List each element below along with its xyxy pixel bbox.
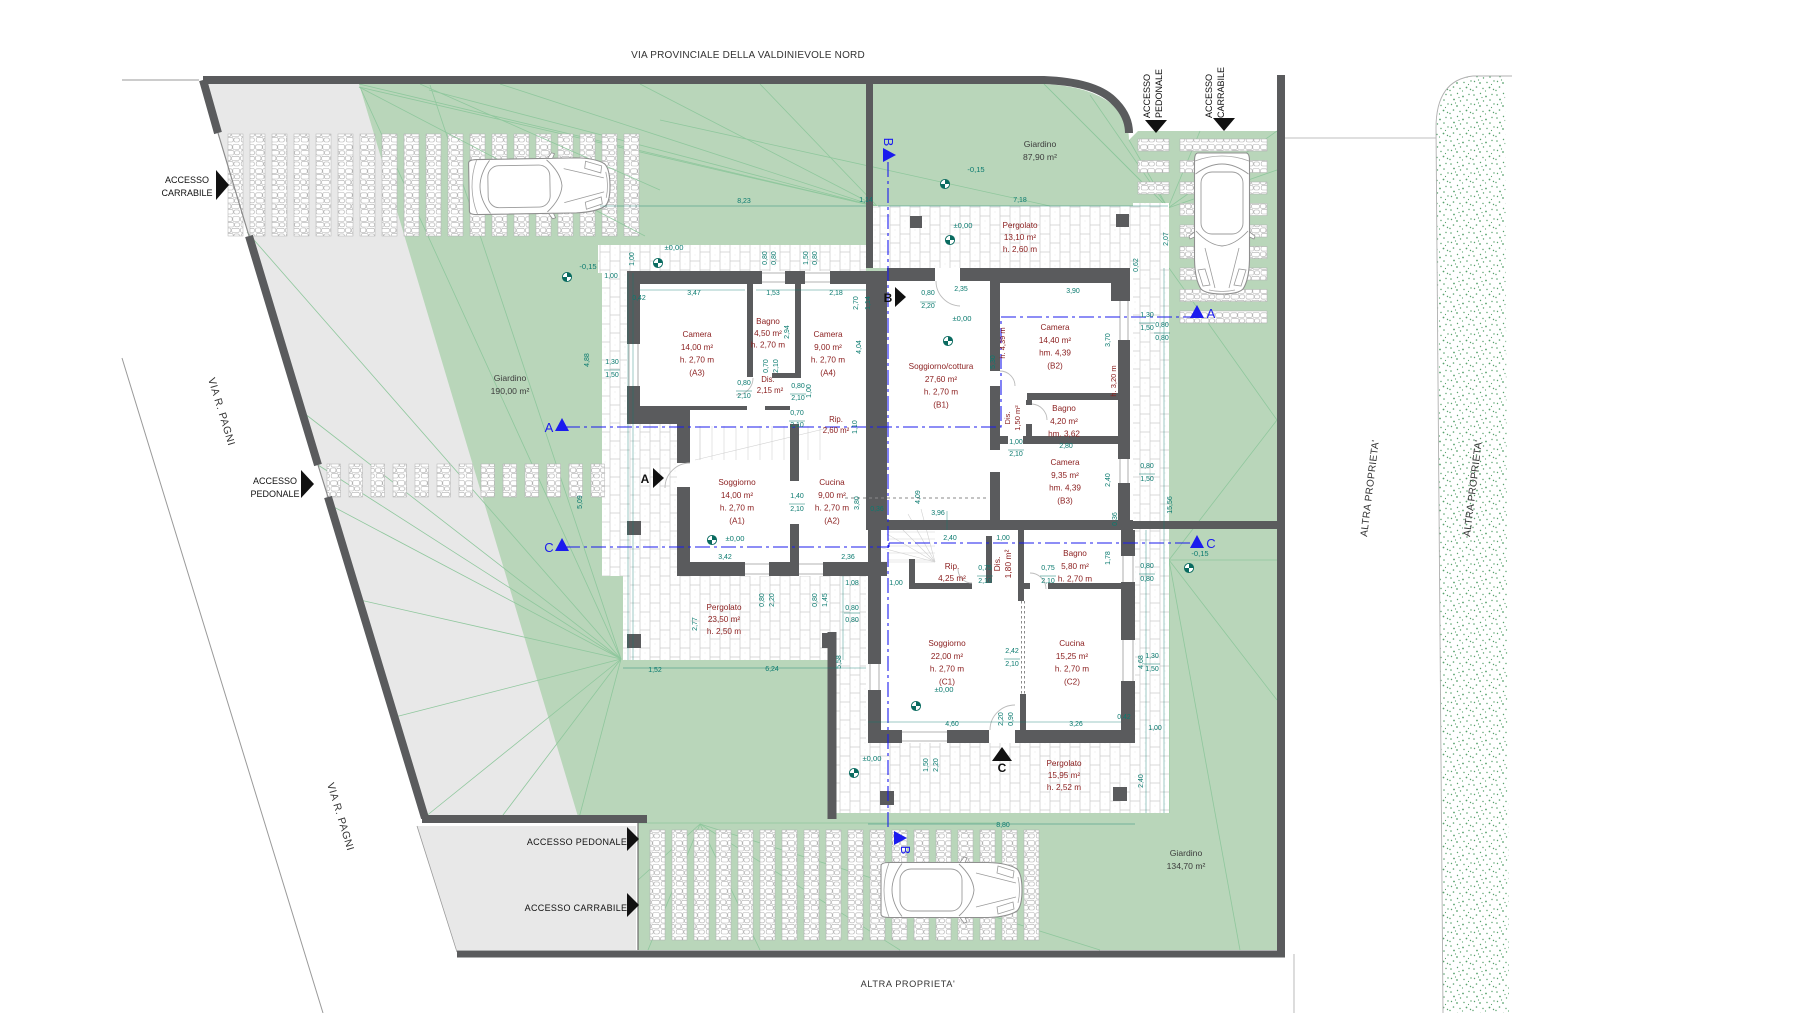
svg-text:Rip.: Rip. xyxy=(945,562,960,571)
svg-text:2,18: 2,18 xyxy=(829,290,843,297)
svg-text:C: C xyxy=(998,761,1007,775)
svg-text:0,80: 0,80 xyxy=(921,290,935,297)
svg-text:Cucina: Cucina xyxy=(1059,639,1085,648)
svg-text:4,25 m²: 4,25 m² xyxy=(938,574,966,583)
svg-text:±0,00: ±0,00 xyxy=(953,314,972,323)
svg-text:ACCESSO: ACCESSO xyxy=(1142,74,1152,118)
svg-text:2,20: 2,20 xyxy=(769,593,776,607)
svg-text:(A1): (A1) xyxy=(729,516,745,525)
svg-text:2,42: 2,42 xyxy=(1005,648,1019,655)
svg-text:5,80 m²: 5,80 m² xyxy=(1061,562,1089,571)
svg-text:±0,00: ±0,00 xyxy=(863,754,882,763)
svg-text:2,20: 2,20 xyxy=(921,303,935,310)
svg-text:1,40: 1,40 xyxy=(790,493,804,500)
svg-text:Giardino: Giardino xyxy=(494,373,527,383)
svg-text:15,95 m²: 15,95 m² xyxy=(1048,771,1081,780)
svg-text:Giardino: Giardino xyxy=(1170,848,1203,858)
svg-text:0,80: 0,80 xyxy=(845,617,859,624)
svg-text:±0,00: ±0,00 xyxy=(665,243,684,252)
svg-text:2,77: 2,77 xyxy=(692,617,699,631)
svg-text:Cucina: Cucina xyxy=(819,478,845,487)
svg-text:14,00 m²: 14,00 m² xyxy=(721,491,754,500)
svg-text:2,10: 2,10 xyxy=(790,422,804,429)
svg-text:h. 2,70 m: h. 2,70 m xyxy=(815,504,849,513)
svg-text:0,42: 0,42 xyxy=(1117,714,1131,721)
svg-text:Camera: Camera xyxy=(682,330,712,339)
svg-text:h. 4,39 m: h. 4,39 m xyxy=(998,327,1007,358)
svg-text:Camera: Camera xyxy=(813,330,843,339)
svg-text:A: A xyxy=(1207,306,1216,321)
svg-text:0,80: 0,80 xyxy=(759,593,766,607)
svg-text:C: C xyxy=(544,540,553,555)
svg-text:1,50: 1,50 xyxy=(923,758,930,772)
svg-text:5,09: 5,09 xyxy=(577,495,584,509)
svg-text:9,00 m²: 9,00 m² xyxy=(814,343,842,352)
svg-text:1,30: 1,30 xyxy=(1145,653,1159,660)
svg-text:1,50: 1,50 xyxy=(803,251,810,265)
svg-text:Pergolato: Pergolato xyxy=(1002,221,1037,230)
svg-text:0,36: 0,36 xyxy=(870,506,884,513)
svg-text:Dis.: Dis. xyxy=(1003,412,1012,425)
svg-text:ALTRA PROPRIETA': ALTRA PROPRIETA' xyxy=(861,979,956,989)
svg-text:2,10: 2,10 xyxy=(1005,661,1019,668)
svg-text:9,00 m²: 9,00 m² xyxy=(818,491,846,500)
svg-text:1,80 m²: 1,80 m² xyxy=(1003,549,1013,578)
svg-text:h. 2,70 m: h. 2,70 m xyxy=(924,388,958,397)
svg-text:2,07: 2,07 xyxy=(1163,232,1170,246)
svg-text:1,78: 1,78 xyxy=(1105,551,1112,565)
svg-text:1,50: 1,50 xyxy=(605,372,619,379)
svg-text:1,00: 1,00 xyxy=(1009,439,1023,446)
svg-text:PEDONALE: PEDONALE xyxy=(1154,69,1164,118)
svg-text:(A2): (A2) xyxy=(824,516,840,525)
svg-text:1,00: 1,00 xyxy=(996,535,1010,542)
svg-text:(B2): (B2) xyxy=(1047,361,1063,370)
svg-text:1,10: 1,10 xyxy=(852,420,859,434)
svg-text:15,25 m²: 15,25 m² xyxy=(1056,652,1089,661)
svg-text:ACCESSO: ACCESSO xyxy=(165,175,209,185)
svg-text:23,50 m²: 23,50 m² xyxy=(708,615,741,624)
svg-text:±0,00: ±0,00 xyxy=(954,221,973,230)
svg-text:0,80: 0,80 xyxy=(845,605,859,612)
svg-text:0,62: 0,62 xyxy=(1133,258,1140,272)
svg-text:A: A xyxy=(545,420,554,435)
svg-text:0,70: 0,70 xyxy=(790,410,804,417)
svg-text:1,00: 1,00 xyxy=(629,252,636,266)
svg-text:1,45: 1,45 xyxy=(822,593,829,607)
svg-text:22,00 m²: 22,00 m² xyxy=(931,652,964,661)
svg-text:14,40 m²: 14,40 m² xyxy=(1039,336,1072,345)
svg-text:-0,15: -0,15 xyxy=(967,165,984,174)
svg-text:h. 3,20 m: h. 3,20 m xyxy=(1109,365,1118,396)
svg-text:h. 2,50 m: h. 2,50 m xyxy=(707,627,741,636)
svg-text:0,80: 0,80 xyxy=(812,593,819,607)
svg-text:6,24: 6,24 xyxy=(765,666,779,673)
svg-text:1,30: 1,30 xyxy=(1140,312,1154,319)
svg-text:h. 2,70 m: h. 2,70 m xyxy=(1055,665,1089,674)
svg-text:87,90 m²: 87,90 m² xyxy=(1023,152,1057,162)
svg-text:Bagno: Bagno xyxy=(756,317,780,326)
svg-text:h. 2,52 m: h. 2,52 m xyxy=(1047,783,1081,792)
svg-text:-0,15: -0,15 xyxy=(579,262,596,271)
svg-text:hm. 4,39: hm. 4,39 xyxy=(1039,349,1071,358)
svg-text:27,60 m²: 27,60 m² xyxy=(925,375,958,384)
svg-text:ACCESSO PEDONALE: ACCESSO PEDONALE xyxy=(527,837,627,847)
svg-text:2,10: 2,10 xyxy=(978,578,992,585)
svg-text:8,23: 8,23 xyxy=(737,198,751,205)
svg-text:Pergolato: Pergolato xyxy=(706,603,741,612)
svg-text:±0,00: ±0,00 xyxy=(726,534,745,543)
svg-text:h. 2,70 m: h. 2,70 m xyxy=(930,665,964,674)
svg-text:(A3): (A3) xyxy=(689,368,705,377)
svg-text:2,94: 2,94 xyxy=(784,325,791,339)
svg-text:3,42: 3,42 xyxy=(718,554,732,561)
svg-text:0,80: 0,80 xyxy=(1140,563,1154,570)
svg-text:2,10: 2,10 xyxy=(791,395,805,402)
svg-text:h. 2,70 m: h. 2,70 m xyxy=(720,504,754,513)
svg-text:Camera: Camera xyxy=(1050,458,1080,467)
svg-text:Giardino: Giardino xyxy=(1024,139,1057,149)
svg-text:1,30: 1,30 xyxy=(605,359,619,366)
svg-text:13,10 m²: 13,10 m² xyxy=(1004,233,1037,242)
svg-text:h. 2,60 m: h. 2,60 m xyxy=(1003,245,1037,254)
svg-text:3,90: 3,90 xyxy=(1066,288,1080,295)
svg-text:hm. 3,62: hm. 3,62 xyxy=(1048,430,1080,439)
svg-text:0,90: 0,90 xyxy=(1008,712,1015,726)
svg-text:CARRABILE: CARRABILE xyxy=(1216,67,1226,118)
svg-text:7,18: 7,18 xyxy=(1013,197,1027,204)
svg-text:0,80: 0,80 xyxy=(791,383,805,390)
svg-text:hm. 4,39: hm. 4,39 xyxy=(1049,484,1081,493)
svg-text:PEDONALE: PEDONALE xyxy=(250,489,299,499)
svg-text:4,68: 4,68 xyxy=(1138,655,1145,669)
svg-text:2,10: 2,10 xyxy=(1009,451,1023,458)
svg-text:0,75: 0,75 xyxy=(978,565,992,572)
svg-text:2,70: 2,70 xyxy=(853,296,860,310)
svg-text:±0,00: ±0,00 xyxy=(935,685,954,694)
svg-text:0,36: 0,36 xyxy=(1112,512,1119,526)
svg-text:9,35 m²: 9,35 m² xyxy=(1051,471,1079,480)
svg-text:3,70: 3,70 xyxy=(1105,333,1112,347)
svg-text:0,80: 0,80 xyxy=(1140,576,1154,583)
svg-text:3,47: 3,47 xyxy=(687,290,701,297)
svg-text:CARRABILE: CARRABILE xyxy=(161,188,212,198)
svg-text:0,42: 0,42 xyxy=(632,295,646,302)
svg-text:134,70 m²: 134,70 m² xyxy=(1167,861,1206,871)
svg-text:2,80: 2,80 xyxy=(1059,443,1073,450)
svg-text:1,00: 1,00 xyxy=(604,273,618,280)
svg-text:Bagno: Bagno xyxy=(1052,404,1076,413)
svg-text:4,20 m²: 4,20 m² xyxy=(1050,417,1078,426)
svg-text:h. 2,70 m: h. 2,70 m xyxy=(811,356,845,365)
svg-text:-0,15: -0,15 xyxy=(1191,549,1208,558)
svg-text:4,88: 4,88 xyxy=(584,353,591,367)
svg-text:VIA PROVINCIALE DELLA VALDINIE: VIA PROVINCIALE DELLA VALDINIEVOLE NORD xyxy=(631,50,865,61)
svg-text:1,00: 1,00 xyxy=(806,384,813,398)
svg-text:Soggiorno: Soggiorno xyxy=(928,639,966,648)
svg-text:A: A xyxy=(641,472,650,486)
svg-text:3,80: 3,80 xyxy=(854,496,861,510)
svg-text:ACCESSO CARRABILE: ACCESSO CARRABILE xyxy=(525,903,628,913)
svg-text:h. 2,70 m: h. 2,70 m xyxy=(680,356,714,365)
svg-text:0,80: 0,80 xyxy=(1155,322,1169,329)
svg-text:2,10: 2,10 xyxy=(790,506,804,513)
svg-text:(B3): (B3) xyxy=(1057,496,1073,505)
svg-text:0,80: 0,80 xyxy=(1155,335,1169,342)
svg-text:Soggiorno/cottura: Soggiorno/cottura xyxy=(909,362,974,371)
svg-text:1,50: 1,50 xyxy=(1140,325,1154,332)
svg-text:2,36: 2,36 xyxy=(841,554,855,561)
svg-text:3,96: 3,96 xyxy=(931,510,945,517)
svg-text:4,09: 4,09 xyxy=(915,490,922,504)
svg-text:Rip.: Rip. xyxy=(829,415,843,424)
svg-text:Dis.: Dis. xyxy=(992,557,1002,572)
svg-text:0,80: 0,80 xyxy=(1140,463,1154,470)
svg-text:Camera: Camera xyxy=(1040,323,1070,332)
svg-text:2,10: 2,10 xyxy=(737,393,751,400)
svg-text:1,14: 1,14 xyxy=(865,296,872,310)
svg-text:190,00 m²: 190,00 m² xyxy=(491,386,530,396)
svg-text:1,50: 1,50 xyxy=(1145,666,1159,673)
svg-text:Bagno: Bagno xyxy=(1063,549,1087,558)
svg-text:2,60 m²: 2,60 m² xyxy=(823,426,850,435)
svg-text:B: B xyxy=(884,291,893,305)
svg-text:0,80: 0,80 xyxy=(771,251,778,265)
svg-text:0,70: 0,70 xyxy=(763,359,770,373)
svg-text:2,20: 2,20 xyxy=(933,758,940,772)
svg-text:B: B xyxy=(898,846,913,855)
svg-text:2,40: 2,40 xyxy=(943,535,957,542)
svg-text:Soggiorno: Soggiorno xyxy=(718,478,756,487)
svg-text:0,80: 0,80 xyxy=(812,251,819,265)
svg-text:ACCESSO: ACCESSO xyxy=(1204,74,1214,118)
svg-text:8,80: 8,80 xyxy=(996,822,1010,829)
svg-text:1,14: 1,14 xyxy=(859,197,873,204)
svg-text:0,80: 0,80 xyxy=(737,380,751,387)
svg-text:2,10: 2,10 xyxy=(773,359,780,373)
svg-text:4,04: 4,04 xyxy=(856,340,863,354)
svg-text:Pergolato: Pergolato xyxy=(1046,759,1081,768)
svg-text:2,15 m²: 2,15 m² xyxy=(757,386,784,395)
svg-text:14,00 m²: 14,00 m² xyxy=(681,343,714,352)
svg-text:ACCESSO: ACCESSO xyxy=(253,476,297,486)
svg-text:1,50 m²: 1,50 m² xyxy=(1013,405,1022,431)
svg-text:h. 2,70 m: h. 2,70 m xyxy=(1058,575,1092,584)
svg-text:2,20: 2,20 xyxy=(998,712,1005,726)
svg-text:2,40: 2,40 xyxy=(1105,473,1112,487)
svg-text:4,50 m²: 4,50 m² xyxy=(754,329,782,338)
svg-text:1,00: 1,00 xyxy=(889,580,903,587)
svg-text:(C2): (C2) xyxy=(1064,677,1080,686)
svg-text:5,58: 5,58 xyxy=(836,655,843,669)
svg-text:(B1): (B1) xyxy=(933,400,949,409)
svg-text:(A4): (A4) xyxy=(820,368,836,377)
svg-text:15,56: 15,56 xyxy=(1167,496,1174,514)
svg-text:0,75: 0,75 xyxy=(1041,565,1055,572)
svg-text:1,00: 1,00 xyxy=(1148,725,1162,732)
svg-text:1,50: 1,50 xyxy=(1140,476,1154,483)
svg-text:h. 2,70 m: h. 2,70 m xyxy=(751,341,785,350)
svg-text:0,80: 0,80 xyxy=(762,251,769,265)
svg-text:2,10: 2,10 xyxy=(1041,578,1055,585)
svg-text:Dis.: Dis. xyxy=(761,375,774,384)
svg-text:5,30: 5,30 xyxy=(990,355,997,369)
svg-text:B: B xyxy=(881,138,896,147)
svg-text:2,40: 2,40 xyxy=(1138,774,1145,788)
svg-text:1,08: 1,08 xyxy=(845,580,859,587)
svg-text:1,53: 1,53 xyxy=(766,290,780,297)
svg-text:2,35: 2,35 xyxy=(954,286,968,293)
